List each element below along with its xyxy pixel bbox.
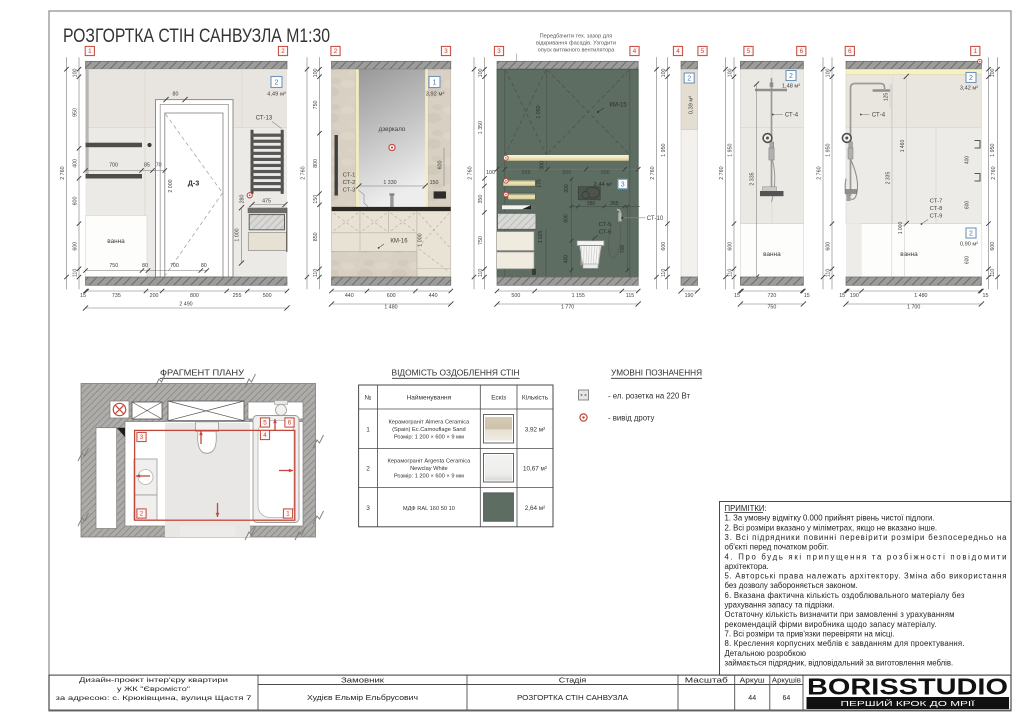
svg-text:110: 110 [826,269,832,277]
svg-text:1: 1 [366,427,370,434]
svg-text:СТ-10: СТ-10 [647,216,664,222]
svg-text:5. Авторські права належать ар: 5. Авторські права належать архітектору.… [725,572,1007,581]
svg-text:Детальною розробкою: Детальною розробкою [725,649,807,658]
svg-text:700: 700 [109,163,118,169]
svg-text:4: 4 [263,432,267,439]
svg-text:Розмір: 1 200 × 600 × 9 мм: Розмір: 1 200 × 600 × 9 мм [394,474,464,480]
svg-text:BORISSTUDIO: BORISSTUDIO [807,674,1008,700]
svg-text:400: 400 [73,159,79,168]
svg-text:2 760: 2 760 [719,166,725,179]
svg-text:1: 1 [286,511,290,518]
svg-text:5: 5 [263,420,267,427]
svg-text:Кількість: Кількість [522,394,549,402]
svg-text:Стадія: Стадія [559,676,587,684]
svg-text:СТ-7: СТ-7 [930,199,943,205]
svg-text:265: 265 [610,201,619,207]
svg-text:1: 1 [433,79,437,86]
svg-text:735: 735 [112,293,121,299]
svg-text:4: 4 [633,48,637,55]
svg-text:- вивід дроту: - вивід дроту [608,414,655,423]
svg-text:2 335: 2 335 [750,172,756,185]
svg-text:175: 175 [537,179,543,188]
svg-text:475: 475 [262,199,271,205]
svg-text:100: 100 [728,68,734,77]
svg-text:600: 600 [990,242,996,251]
svg-text:255: 255 [233,293,242,299]
svg-text:500: 500 [511,293,520,299]
svg-text:1 155: 1 155 [572,293,585,299]
svg-text:ванна: ванна [900,251,918,258]
svg-text:6. Вказана фактична кількість: 6. Вказана фактична кількість оздоблювал… [725,591,965,600]
svg-text:3,42 м²: 3,42 м² [960,86,978,92]
svg-text:Остаточну кількість визначити: Остаточну кількість визначити при замовл… [725,610,955,619]
svg-text:Аркушів: Аркушів [772,676,801,684]
svg-text:СТ-5: СТ-5 [599,222,612,228]
svg-text:190: 190 [850,293,859,299]
svg-text:110: 110 [728,269,734,277]
svg-text:6: 6 [288,420,292,427]
svg-text:Newclay White: Newclay White [410,466,448,472]
svg-text:3,92 м²: 3,92 м² [426,92,445,98]
svg-text:СТ-6: СТ-6 [599,229,612,235]
svg-text:700: 700 [170,263,179,269]
svg-text:2 760: 2 760 [468,166,474,179]
svg-text:ванна: ванна [107,238,125,245]
svg-text:2,44 м²: 2,44 м² [593,182,612,188]
svg-text:1 330: 1 330 [383,180,396,186]
svg-text:1: 1 [88,48,92,55]
svg-text:1 700: 1 700 [907,305,920,311]
svg-text:100: 100 [478,68,484,77]
svg-text:за адресою: с. Крюківщина, вул: за адресою: с. Крюківщина, вулиця Щастя … [56,694,252,702]
svg-text:6: 6 [800,48,804,55]
svg-text:4,49 м²: 4,49 м² [267,92,286,98]
svg-text:5: 5 [701,48,705,55]
svg-text:950: 950 [73,108,79,117]
svg-text:10,67 м²: 10,67 м² [523,466,547,473]
svg-text:Д-3: Д-3 [188,179,200,188]
svg-text:15: 15 [839,293,845,299]
svg-text:2. Всі розміри вказано у мілім: 2. Всі розміри вказано у міліметрах, якщ… [725,523,938,532]
svg-text:урахування запасу та підрізки.: урахування запасу та підрізки. [725,601,835,610]
svg-text:700: 700 [620,245,626,254]
svg-text:1. За умовну відмітку 0.000 пр: 1. За умовну відмітку 0.000 прийнят ріве… [725,514,935,523]
svg-text:3,92 м²: 3,92 м² [525,427,545,434]
svg-text:110: 110 [73,269,79,277]
svg-text:Масштаб: Масштаб [685,676,728,684]
svg-text:(Spain) Ec.Camouflage Sand: (Spain) Ec.Camouflage Sand [392,427,466,433]
svg-text:РОЗГОРТКА СТІН САНВУЗЛА: РОЗГОРТКА СТІН САНВУЗЛА [517,695,628,702]
svg-text:400: 400 [564,255,570,264]
svg-text:600: 600 [387,293,396,299]
svg-text:Аркуш: Аркуш [740,677,765,684]
svg-text:150: 150 [430,180,439,186]
svg-text:2 335: 2 335 [885,172,891,185]
svg-text:відкривання фасадів. Узгодити: відкривання фасадів. Узгодити [536,41,616,47]
svg-text:СТ-4: СТ-4 [872,113,886,119]
svg-text:600: 600 [965,201,971,210]
svg-text:СТ-4: СТ-4 [785,113,799,119]
svg-text:600: 600 [826,242,832,251]
svg-text:440: 440 [429,293,438,299]
svg-text:Передбачити тех. зазор для: Передбачити тех. зазор для [540,34,613,40]
svg-text:Розмір: 1 200 × 600 × 9 мм: Розмір: 1 200 × 600 × 9 мм [394,435,464,441]
svg-text:0,90 м²: 0,90 м² [960,242,978,248]
svg-text:1 350: 1 350 [478,121,484,134]
svg-text:2 760: 2 760 [650,166,656,179]
svg-text:2 760: 2 760 [817,166,823,179]
svg-text:3: 3 [366,505,370,512]
svg-text:70: 70 [156,163,162,169]
svg-text:0,39 м²: 0,39 м² [689,96,695,114]
svg-text:110: 110 [990,269,996,277]
svg-text:80: 80 [173,92,179,98]
svg-text:850: 850 [313,232,319,241]
svg-text:440: 440 [345,293,354,299]
svg-text:СТ-1: СТ-1 [343,173,356,179]
svg-text:1 025: 1 025 [538,231,544,244]
svg-text:6: 6 [848,48,852,55]
svg-text:100: 100 [73,68,79,77]
svg-text:Керамограніт Almera Ceramica: Керамограніт Almera Ceramica [388,420,470,426]
svg-text:110: 110 [478,269,484,277]
svg-text:15: 15 [804,293,810,299]
svg-text:15: 15 [983,293,989,299]
svg-text:1 000: 1 000 [418,233,424,246]
svg-text:№: № [365,395,372,402]
svg-text:1 480: 1 480 [914,293,927,299]
svg-text:750: 750 [313,100,319,109]
svg-text:80: 80 [142,263,148,269]
svg-text:ФРАГМЕНТ ПЛАНУ: ФРАГМЕНТ ПЛАНУ [160,368,245,378]
svg-text:600: 600 [564,214,570,223]
svg-text:110: 110 [313,269,319,277]
svg-text:СТ-8: СТ-8 [930,206,943,212]
svg-text:УМОВНІ ПОЗНАЧЕННЯ: УМОВНІ ПОЗНАЧЕННЯ [611,368,702,378]
svg-text:64: 64 [783,695,791,702]
svg-text:КМ-16: КМ-16 [390,239,408,245]
svg-text:1 950: 1 950 [990,143,996,156]
svg-text:2: 2 [366,466,370,473]
svg-text:2 760: 2 760 [301,166,307,179]
svg-text:720: 720 [767,293,776,299]
svg-text:КМ-15: КМ-15 [609,103,627,109]
svg-text:ПЕРШИЙ КРОК ДО МРІЇ: ПЕРШИЙ КРОК ДО МРІЇ [841,699,975,708]
svg-text:2: 2 [281,48,285,55]
svg-text:600: 600 [73,197,79,206]
svg-text:2 000: 2 000 [168,179,174,192]
svg-text:200: 200 [150,293,159,299]
svg-text:600: 600 [73,242,79,251]
svg-text:190: 190 [685,293,694,299]
svg-text:44: 44 [748,695,756,702]
svg-text:110: 110 [661,269,667,277]
svg-text:1,48 м²: 1,48 м² [782,84,800,90]
svg-text:3: 3 [444,48,448,55]
svg-text:1 770: 1 770 [561,305,574,311]
svg-text:100: 100 [826,68,832,77]
svg-text:800: 800 [313,159,319,168]
svg-text:750: 750 [109,263,118,269]
svg-text:Худієв Ельмір Ельбрусович: Худієв Ельмір Ельбрусович [307,694,418,702]
svg-text:125: 125 [884,93,890,102]
svg-text:100: 100 [486,170,495,176]
svg-text:Найменування: Найменування [407,394,452,402]
svg-text:2: 2 [969,75,973,82]
svg-text:100: 100 [990,68,996,77]
svg-text:МДФ RAL 160 50 10: МДФ RAL 160 50 10 [403,506,455,512]
svg-text:СТ-13: СТ-13 [256,116,273,122]
svg-text:РОЗГОРТКА СТІН САНВУЗЛА М1:30: РОЗГОРТКА СТІН САНВУЗЛА М1:30 [63,25,330,47]
svg-text:1 460: 1 460 [900,140,906,153]
svg-text:Керамограніт Argenta Ceramica: Керамограніт Argenta Ceramica [388,459,472,465]
svg-text:ПРИМІТКИ:: ПРИМІТКИ: [725,504,767,513]
svg-text:8. Креслення корпусних меблів: 8. Креслення корпусних меблів є завдання… [725,639,965,648]
svg-text:350: 350 [478,195,484,204]
svg-text:200: 200 [564,184,570,193]
svg-text:архітектора.: архітектора. [725,562,769,571]
svg-text:3. Всі підрядники повинні пере: 3. Всі підрядники повинні перевірити роз… [725,533,1008,542]
svg-text:1 050: 1 050 [536,105,542,118]
svg-text:350: 350 [587,201,596,207]
svg-text:600: 600 [661,242,667,251]
svg-text:600: 600 [965,256,971,265]
svg-text:115: 115 [626,293,634,299]
svg-text:2: 2 [687,75,691,82]
svg-text:СТ-9: СТ-9 [930,214,943,220]
svg-text:ванна: ванна [763,251,781,258]
svg-text:5: 5 [747,48,751,55]
svg-text:1 000: 1 000 [898,222,904,235]
svg-text:800: 800 [190,293,199,299]
svg-text:Ескіз: Ескіз [491,394,506,402]
svg-text:3: 3 [621,181,625,188]
svg-text:2: 2 [275,79,279,86]
svg-text:Замовник: Замовник [341,677,385,684]
svg-text:об'єкті перед початком робіт.: об'єкті перед початком робіт. [725,543,829,552]
svg-text:рекомендацій фірми виробника щ: рекомендацій фірми виробника щодо запасу… [725,620,937,629]
svg-text:555: 555 [522,170,531,176]
svg-text:2 760: 2 760 [991,166,997,179]
svg-text:80: 80 [201,263,207,269]
svg-text:750: 750 [767,305,776,311]
svg-text:400: 400 [965,156,971,165]
svg-text:Дизайн-проект інтер'єру кварти: Дизайн-проект інтер'єру квартири [79,676,228,684]
svg-text:85: 85 [144,163,150,169]
svg-text:- ел. розетка на 220 Вт: - ел. розетка на 220 Вт [608,392,690,401]
svg-text:1 480: 1 480 [384,305,397,311]
svg-text:600: 600 [438,161,444,170]
svg-text:2: 2 [334,48,338,55]
svg-text:7. Всі розміри та прив'язки пе: 7. Всі розміри та прив'язки перевіряти н… [725,629,895,638]
svg-text:15: 15 [734,293,740,299]
svg-text:у ЖК "Євромісто": у ЖК "Євромісто" [117,685,191,693]
svg-text:1 950: 1 950 [826,143,832,156]
svg-text:ВІДОМІСТЬ ОЗДОБЛЕННЯ СТІН: ВІДОМІСТЬ ОЗДОБЛЕННЯ СТІН [392,368,520,378]
svg-text:без дозволу забороняється зако: без дозволу забороняється законом. [725,581,858,590]
svg-text:2: 2 [969,230,973,237]
svg-text:дзеркало: дзеркало [379,126,406,133]
svg-text:опуск витяжного вентилятора: опуск витяжного вентилятора [538,48,616,54]
svg-text:3: 3 [497,48,501,55]
svg-text:100: 100 [313,68,319,77]
svg-text:СТ-3: СТ-3 [343,188,356,194]
svg-text:150: 150 [313,195,319,204]
svg-text:500: 500 [601,170,610,176]
svg-text:280: 280 [240,195,246,204]
svg-text:500: 500 [562,170,571,176]
svg-text:2: 2 [140,511,144,518]
svg-text:500: 500 [263,293,272,299]
svg-text:300: 300 [540,161,546,170]
svg-text:2: 2 [789,73,793,80]
svg-text:2 490: 2 490 [179,302,192,308]
svg-text:2 760: 2 760 [60,166,66,179]
svg-text:600: 600 [728,242,734,251]
svg-text:3: 3 [140,434,144,441]
svg-text:займається підрядник, відповід: займається підрядник, відповідальний за … [725,658,954,667]
svg-text:4: 4 [676,48,680,55]
svg-text:2,64 м²: 2,64 м² [525,505,545,512]
svg-text:1: 1 [974,48,978,55]
svg-text:100: 100 [661,68,667,77]
svg-text:15: 15 [80,293,86,299]
svg-text:1 950: 1 950 [728,143,734,156]
svg-text:СТ-2: СТ-2 [343,180,356,186]
svg-text:1 000: 1 000 [235,228,241,241]
svg-text:4. Про будь які припущення та: 4. Про будь які припущення та розбіжност… [725,552,1007,561]
svg-text:750: 750 [478,236,484,245]
svg-text:1 950: 1 950 [661,143,667,156]
